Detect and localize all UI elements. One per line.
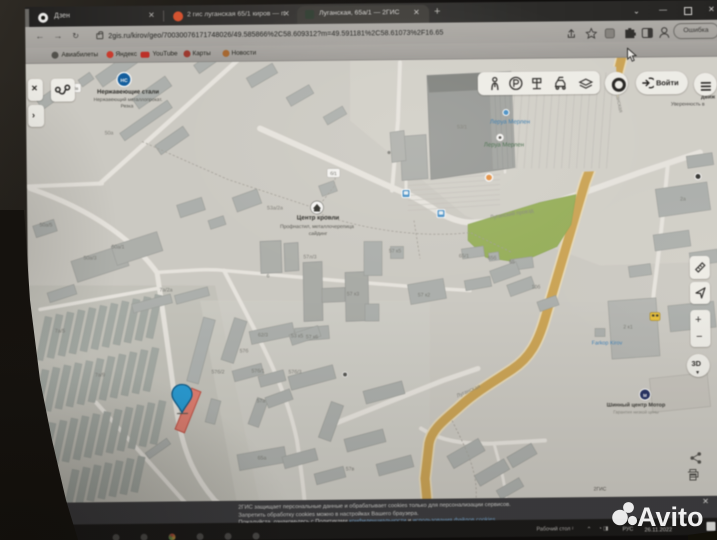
svg-text:Леруа Мерлен: Леруа Мерлен bbox=[490, 119, 530, 125]
svg-text:7а/5: 7а/5 bbox=[55, 328, 65, 334]
svg-text:Профнастил, металлочерепица: Профнастил, металлочерепица bbox=[280, 224, 354, 230]
svg-text:2а: 2а bbox=[680, 196, 686, 202]
svg-text:50а/1: 50а/1 bbox=[112, 244, 125, 250]
svg-text:2 к1: 2 к1 bbox=[623, 324, 633, 330]
svg-text:50а/5: 50а/5 bbox=[40, 222, 53, 228]
svg-text:53/1: 53/1 bbox=[457, 124, 467, 130]
svg-text:7а/9: 7а/9 bbox=[95, 372, 105, 378]
svg-text:10б: 10б bbox=[532, 284, 541, 290]
svg-text:65б: 65б bbox=[488, 255, 497, 261]
svg-text:Уверенность в: Уверенность в bbox=[671, 101, 705, 107]
svg-text:6: 6 bbox=[267, 273, 270, 279]
svg-text:57б/3: 57б/3 bbox=[288, 369, 301, 375]
svg-text:57в: 57в bbox=[346, 466, 355, 472]
svg-text:62/3: 62/3 bbox=[258, 332, 268, 338]
svg-text:Farkop Kirov: Farkop Kirov bbox=[592, 340, 623, 346]
svg-text:57 к3: 57 к3 bbox=[347, 291, 359, 297]
svg-text:7а/2а: 7а/2а bbox=[160, 287, 173, 293]
svg-text:Гарантия низкой цены: Гарантия низкой цены bbox=[613, 409, 658, 414]
svg-text:57а: 57а bbox=[257, 398, 266, 404]
svg-text:57б: 57б bbox=[240, 348, 249, 354]
svg-text:Avito: Avito bbox=[637, 502, 704, 532]
svg-text:2ГИС: 2ГИС bbox=[594, 486, 607, 492]
svg-text:57б/1: 57б/1 bbox=[251, 368, 264, 374]
svg-text:сайдинг: сайдинг bbox=[309, 230, 328, 237]
svg-text:53 к5: 53 к5 bbox=[291, 333, 303, 339]
svg-text:НС: НС bbox=[120, 78, 128, 84]
svg-text:53а/2а: 53а/2а bbox=[267, 205, 283, 211]
svg-text:65/1: 65/1 bbox=[459, 253, 469, 259]
svg-text:Резка: Резка bbox=[121, 103, 134, 109]
svg-text:Центр кровли: Центр кровли bbox=[297, 214, 340, 221]
svg-text:57б/2: 57б/2 bbox=[211, 369, 224, 375]
svg-text:65а: 65а bbox=[258, 455, 267, 461]
svg-text:50а/3: 50а/3 bbox=[84, 255, 97, 261]
svg-text:57 к6: 57 к6 bbox=[306, 334, 318, 340]
svg-text:57 к2: 57 к2 bbox=[418, 292, 430, 298]
svg-text:57л/3: 57л/3 bbox=[303, 254, 316, 260]
svg-text:Шинный центр Мотор: Шинный центр Мотор bbox=[607, 401, 666, 408]
svg-text:57 к5: 57 к5 bbox=[389, 248, 401, 254]
svg-text:М: М bbox=[643, 393, 647, 398]
svg-text:Леруа Мерлен: Леруа Мерлен bbox=[484, 142, 524, 148]
svg-text:б/1: б/1 bbox=[330, 171, 337, 177]
svg-text:Нержавеющие стали: Нержавеющие стали bbox=[97, 89, 159, 95]
svg-text:65: 65 bbox=[509, 259, 515, 265]
svg-text:50а: 50а bbox=[105, 130, 114, 136]
